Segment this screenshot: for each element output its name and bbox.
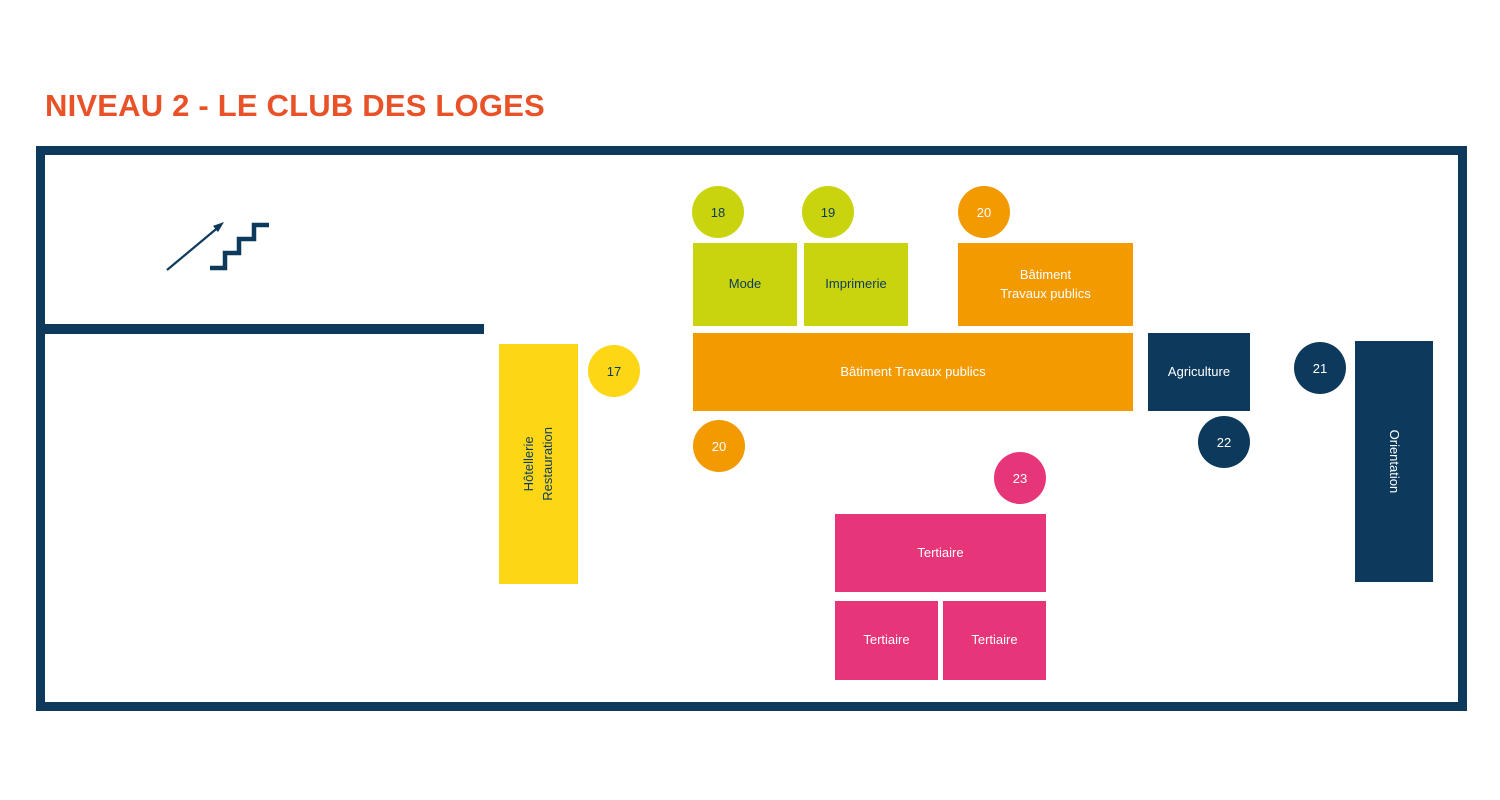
page-title: NIVEAU 2 - LE CLUB DES LOGES bbox=[45, 88, 545, 124]
badge-23: 23 bbox=[994, 452, 1046, 504]
zone-label: Mode bbox=[729, 275, 762, 294]
badge-17: 17 bbox=[588, 345, 640, 397]
badge-number: 23 bbox=[1013, 471, 1027, 486]
badge-number: 20 bbox=[977, 205, 991, 220]
zone-label: Hôtellerie Restauration bbox=[520, 427, 558, 501]
zone-batiment-travaux-publics-large: Bâtiment Travaux publics bbox=[693, 333, 1133, 411]
badge-number: 19 bbox=[821, 205, 835, 220]
badge-19: 19 bbox=[802, 186, 854, 238]
zone-mode: Mode bbox=[693, 243, 797, 326]
badge-number: 20 bbox=[712, 439, 726, 454]
zone-label: Orientation bbox=[1385, 430, 1404, 494]
stairs-up-icon bbox=[155, 210, 280, 282]
badge-number: 18 bbox=[711, 205, 725, 220]
zone-hotellerie-restauration: Hôtellerie Restauration bbox=[499, 344, 578, 584]
zone-label: Agriculture bbox=[1168, 363, 1230, 382]
zone-label: Tertiaire bbox=[971, 631, 1017, 650]
zone-label: Tertiaire bbox=[917, 544, 963, 563]
badge-20-top: 20 bbox=[958, 186, 1010, 238]
badge-number: 22 bbox=[1217, 435, 1231, 450]
zone-agriculture: Agriculture bbox=[1148, 333, 1250, 411]
zone-imprimerie: Imprimerie bbox=[804, 243, 908, 326]
badge-22: 22 bbox=[1198, 416, 1250, 468]
zone-batiment-travaux-publics-small: Bâtiment Travaux publics bbox=[958, 243, 1133, 326]
interior-wall bbox=[40, 324, 484, 334]
badge-number: 17 bbox=[607, 364, 621, 379]
zone-tertiaire-large: Tertiaire bbox=[835, 514, 1046, 592]
zone-orientation: Orientation bbox=[1355, 341, 1433, 582]
badge-18: 18 bbox=[692, 186, 744, 238]
zone-tertiaire-right: Tertiaire bbox=[943, 601, 1046, 680]
badge-20-bottom: 20 bbox=[693, 420, 745, 472]
zone-label: Tertiaire bbox=[863, 631, 909, 650]
badge-21: 21 bbox=[1294, 342, 1346, 394]
zone-label: Bâtiment Travaux publics bbox=[840, 363, 985, 382]
zone-label: Imprimerie bbox=[825, 275, 886, 294]
zone-label: Bâtiment Travaux publics bbox=[1000, 266, 1091, 304]
badge-number: 21 bbox=[1313, 361, 1327, 376]
zone-tertiaire-left: Tertiaire bbox=[835, 601, 938, 680]
